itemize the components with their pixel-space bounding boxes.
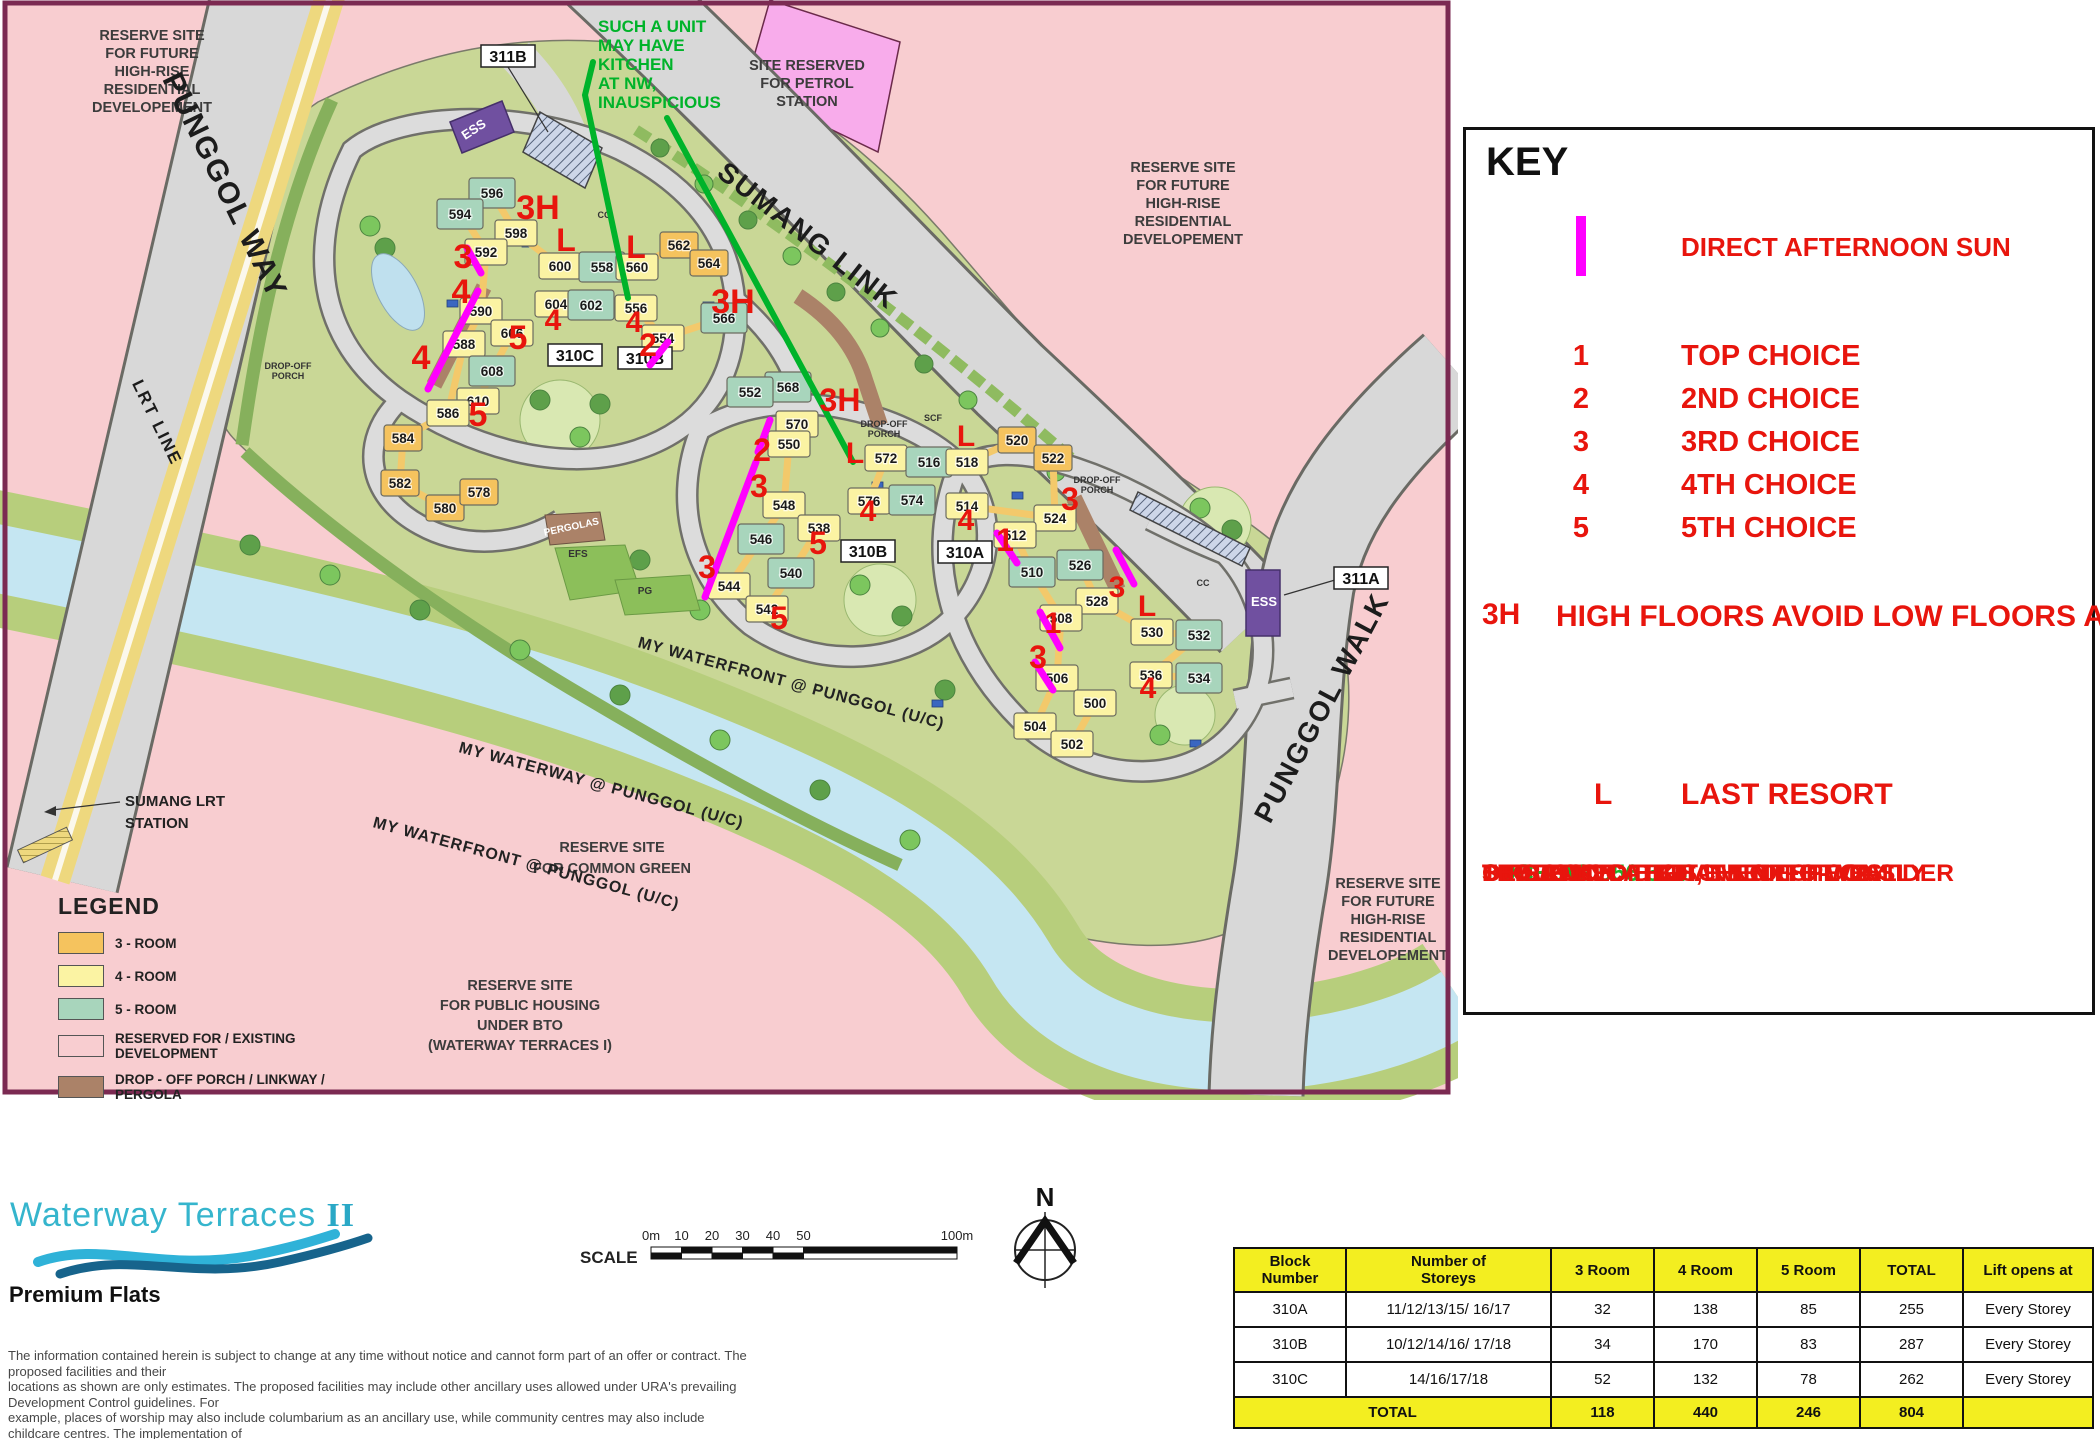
- legend-item: 5 - ROOM: [58, 998, 388, 1020]
- green-note-text: AT NW,: [598, 74, 656, 93]
- block-label-310C: 310C: [548, 344, 602, 366]
- building-number: 562: [668, 238, 691, 253]
- facility-label: ESS: [1251, 594, 1277, 609]
- choice-mark-3: 3: [1109, 571, 1126, 604]
- key-choice-mark: 1: [1551, 340, 1611, 373]
- key-title: KEY: [1486, 140, 1568, 185]
- scale-segment: [773, 1247, 804, 1253]
- scale-segment: [743, 1253, 774, 1259]
- building-number: 518: [956, 455, 979, 470]
- table-cell: 78: [1757, 1362, 1860, 1397]
- building-number: 526: [1069, 558, 1092, 573]
- legend-swatch: [58, 1035, 104, 1057]
- scale-tick-label: 20: [705, 1228, 719, 1243]
- choice-mark-L: L: [626, 229, 646, 265]
- green-note-text: KITCHEN: [598, 55, 674, 74]
- building-586: 586: [427, 400, 469, 426]
- scale-segment: [682, 1253, 713, 1259]
- choice-mark-3: 3: [1029, 639, 1047, 675]
- building-602: 602: [568, 290, 614, 320]
- building-522: 522: [1034, 445, 1072, 471]
- reserve-site-label: FOR PUBLIC HOUSING: [440, 998, 600, 1014]
- choice-mark-3: 3: [1061, 481, 1079, 517]
- block-label-310B: 310B: [841, 540, 895, 562]
- choice-mark-L: L: [957, 420, 975, 453]
- building-502: 502: [1051, 731, 1093, 757]
- table-row: 310A11/12/13/15/ 16/173213885255Every St…: [1234, 1292, 2093, 1327]
- building-532: 532: [1176, 620, 1222, 650]
- lrt-station-label: STATION: [125, 815, 189, 832]
- reserve-site-label: RESERVE SITE: [1130, 160, 1236, 176]
- building-520: 520: [998, 427, 1036, 453]
- building-number: 532: [1188, 628, 1211, 643]
- key-3h-mark: 3H: [1482, 598, 1520, 632]
- tree-icon: [570, 427, 590, 447]
- building-number: 500: [1084, 696, 1107, 711]
- table-cell: 170: [1654, 1327, 1757, 1362]
- legend-swatch: [58, 965, 104, 987]
- table-cell: 310B: [1234, 1327, 1346, 1362]
- key-choice-label: TOP CHOICE: [1681, 340, 1860, 373]
- building-number: 594: [449, 207, 472, 222]
- table-row: 310C14/16/17/185213278262Every Storey: [1234, 1362, 2093, 1397]
- table-header: 3 Room: [1551, 1248, 1654, 1292]
- facility-label: PORCH: [272, 371, 305, 381]
- green-note-text: INAUSPICIOUS: [598, 93, 721, 112]
- tree-icon: [320, 565, 340, 585]
- scale-tick-label: 100m: [941, 1228, 974, 1243]
- building-number: 596: [481, 186, 504, 201]
- facility-label: DROP-OFF: [861, 419, 908, 429]
- facility-label: DROP-OFF: [265, 361, 312, 371]
- building-584: 584: [384, 425, 422, 451]
- building-516: 516: [906, 447, 952, 477]
- table-header: 4 Room: [1654, 1248, 1757, 1292]
- reserve-site-label: FOR FUTURE: [105, 46, 199, 62]
- legend-item: RESERVED FOR / EXISTING DEVELOPMENT: [58, 1031, 388, 1061]
- reserve-site-label: (WATERWAY TERRACES I): [428, 1038, 612, 1054]
- key-panel: KEY DIRECT AFTERNOON SUN 1TOP CHOICE22ND…: [1463, 127, 2095, 1015]
- choice-mark-L: L: [1138, 590, 1156, 623]
- building-534: 534: [1176, 663, 1222, 693]
- tree-icon: [360, 216, 380, 236]
- choice-mark-5: 5: [770, 600, 788, 636]
- tree-icon: [827, 283, 845, 301]
- table-cell: 310C: [1234, 1362, 1346, 1397]
- tree-icon: [915, 355, 933, 373]
- reserve-site-label: RESIDENTIAL: [1340, 930, 1437, 946]
- table-total-row: TOTAL118440246804: [1234, 1397, 2093, 1428]
- tree-icon: [871, 319, 889, 337]
- table-total-cell: 246: [1757, 1397, 1860, 1428]
- table-cell: 262: [1860, 1362, 1963, 1397]
- scale-tick-label: 10: [674, 1228, 688, 1243]
- building-number: 510: [1021, 565, 1044, 580]
- table-total-cell: 804: [1860, 1397, 1963, 1428]
- table-cell: 255: [1860, 1292, 1963, 1327]
- tree-icon: [610, 685, 630, 705]
- key-choice-mark: 5: [1551, 512, 1611, 545]
- building-number: 586: [437, 406, 460, 421]
- tree-icon: [810, 780, 830, 800]
- block-label-text: 310A: [946, 545, 985, 562]
- reserve-site-label: FOR FUTURE: [1341, 894, 1435, 910]
- building-504: 504: [1014, 713, 1056, 739]
- building-number: 584: [392, 431, 415, 446]
- scale-segment: [651, 1253, 682, 1259]
- block-label-310A: 310A: [938, 541, 992, 563]
- building-582: 582: [381, 470, 419, 496]
- key-choice-label: 2ND CHOICE: [1681, 383, 1860, 416]
- key-choice-mark: 2: [1551, 383, 1611, 416]
- table-cell: 11/12/13/15/ 16/17: [1346, 1292, 1551, 1327]
- building-number: 530: [1141, 625, 1164, 640]
- scale-segment: [651, 1247, 682, 1253]
- building-number: 558: [591, 260, 614, 275]
- tree-icon: [1150, 725, 1170, 745]
- table-cell: 52: [1551, 1362, 1654, 1397]
- sun-swatch: [1576, 216, 1586, 276]
- legend-label: 3 - ROOM: [115, 936, 177, 951]
- choice-mark-4: 4: [958, 504, 975, 537]
- scale-segment: [712, 1253, 743, 1259]
- legend: LEGEND 3 - ROOM4 - ROOM5 - ROOMRESERVED …: [58, 893, 388, 1113]
- key-choice-label: 3RD CHOICE: [1681, 426, 1860, 459]
- block-label-text: 310B: [849, 544, 887, 561]
- reserve-site-label: RESERVE SITE: [99, 28, 205, 44]
- tree-icon: [935, 680, 955, 700]
- building-number: 592: [475, 245, 498, 260]
- building-number: 600: [549, 259, 572, 274]
- table-cell: 310A: [1234, 1292, 1346, 1327]
- choice-mark-3H: 3H: [711, 283, 754, 321]
- choice-mark-3H: 3H: [516, 189, 559, 227]
- table-total-cell: 440: [1654, 1397, 1757, 1428]
- facility-label: SCF: [924, 413, 943, 423]
- tree-icon: [651, 139, 669, 157]
- table-cell: 83: [1757, 1327, 1860, 1362]
- building-580: 580: [426, 495, 464, 521]
- legend-swatch: [58, 998, 104, 1020]
- building-number: 578: [468, 485, 491, 500]
- table-header: Number of Storeys: [1346, 1248, 1551, 1292]
- key-3h-text: HIGH FLOORS AVOID LOW FLOORS AS NEAR-BY …: [1556, 598, 2083, 636]
- choice-mark-L: L: [846, 437, 864, 470]
- building-number: 602: [580, 298, 603, 313]
- block-label-text: 311B: [489, 49, 526, 66]
- block-label-311A: 311A: [1334, 567, 1388, 589]
- table-header: Block Number: [1234, 1248, 1346, 1292]
- facility-label: PORCH: [868, 429, 901, 439]
- reserve-site-label: RESERVE SITE: [559, 840, 665, 856]
- facility-label: DROP-OFF: [1074, 475, 1121, 485]
- lrt-station-label: SUMANG LRT: [125, 793, 225, 810]
- choice-mark-3H: 3H: [820, 382, 861, 418]
- key-choice-mark: 3: [1551, 426, 1611, 459]
- building-540: 540: [768, 558, 814, 588]
- block-label-text: 310C: [556, 348, 595, 365]
- building-number: 520: [1006, 433, 1029, 448]
- building-608: 608: [469, 356, 515, 386]
- building-574: 574: [889, 485, 935, 515]
- logo-wave: [38, 1234, 368, 1274]
- key-choice-mark: 4: [1551, 469, 1611, 502]
- scale-bar: SCALE0m1020304050100m: [580, 1228, 973, 1267]
- reserve-site-label: HIGH-RISE: [1351, 912, 1426, 928]
- choice-mark-3: 3: [698, 549, 716, 585]
- table-total-label: TOTAL: [1234, 1397, 1551, 1428]
- scale-label: SCALE: [580, 1248, 638, 1267]
- scale-tick-label: 50: [796, 1228, 810, 1243]
- table-cell: Every Storey: [1963, 1362, 2093, 1397]
- building-number: 564: [698, 256, 721, 271]
- building-564: 564: [690, 250, 728, 276]
- building-number: 568: [777, 380, 800, 395]
- scale-segment: [773, 1253, 804, 1259]
- choice-mark-L: L: [556, 222, 576, 258]
- building-number: 552: [739, 385, 762, 400]
- scale-tick-label: 0m: [642, 1228, 660, 1243]
- table-cell: 287: [1860, 1327, 1963, 1362]
- reserve-site-label: STATION: [776, 94, 837, 110]
- legend-swatch: [58, 1076, 104, 1098]
- tree-icon: [739, 211, 757, 229]
- key-choice-label: 4TH CHOICE: [1681, 469, 1857, 502]
- scale-segment: [804, 1247, 958, 1253]
- tree-icon: [900, 830, 920, 850]
- tree-icon: [510, 640, 530, 660]
- tree-icon: [783, 247, 801, 265]
- legend-label: RESERVED FOR / EXISTING DEVELOPMENT: [115, 1031, 388, 1061]
- tree-icon: [892, 606, 912, 626]
- key-L-label: LAST RESORT: [1681, 778, 1893, 812]
- tree-icon: [710, 730, 730, 750]
- choice-mark-4: 4: [452, 273, 471, 311]
- building-number: 546: [750, 532, 773, 547]
- green-note-text: SUCH A UNIT: [598, 17, 707, 36]
- key-others-line: THIS POINT.: [1482, 860, 1624, 888]
- choice-mark-3: 3: [454, 238, 473, 276]
- reserve-site-label: UNDER BTO: [477, 1018, 563, 1034]
- table-cell: 132: [1654, 1362, 1757, 1397]
- north-arrow: N: [1015, 1182, 1075, 1288]
- facility-label: CC: [1197, 578, 1210, 588]
- facility-label: PORCH: [1081, 485, 1114, 495]
- building-500: 500: [1074, 690, 1116, 716]
- block-summary-table: Block NumberNumber of Storeys3 Room4 Roo…: [1233, 1247, 2094, 1429]
- building-number: 528: [1086, 594, 1109, 609]
- building-number: 548: [773, 498, 796, 513]
- reserve-site-label: DEVELOPEMENT: [1123, 232, 1243, 248]
- reserve-site-label: SITE RESERVED: [749, 58, 865, 74]
- reserve-site-label: RESERVE SITE: [467, 978, 573, 994]
- tree-icon: [530, 390, 550, 410]
- scale-segment: [712, 1247, 743, 1253]
- site-plan-page: 5965945985926005585605625646046025565545…: [0, 0, 2100, 1439]
- tree-icon: [850, 575, 870, 595]
- facility-label: PG: [638, 586, 653, 597]
- table-cell: 138: [1654, 1292, 1757, 1327]
- table-row: 310B10/12/14/16/ 17/183417083287Every St…: [1234, 1327, 2093, 1362]
- building-578: 578: [460, 479, 498, 505]
- building-552: 552: [727, 377, 773, 407]
- legend-label: DROP - OFF PORCH / LINKWAY / PERGOLA: [115, 1072, 388, 1102]
- legend-item: 3 - ROOM: [58, 932, 388, 954]
- building-number: 598: [505, 226, 528, 241]
- choice-mark-4: 4: [412, 339, 431, 377]
- block-label-text: 311A: [1342, 571, 1380, 588]
- reserve-site-label: FOR PETROL: [760, 76, 854, 92]
- building-number: 516: [918, 455, 941, 470]
- choice-mark-4: 4: [1140, 672, 1157, 705]
- shelter-icon: [932, 700, 943, 707]
- building-number: 534: [1188, 671, 1211, 686]
- tree-icon: [630, 550, 650, 570]
- north-label: N: [1036, 1182, 1055, 1212]
- legend-item: 4 - ROOM: [58, 965, 388, 987]
- choice-mark-5: 5: [469, 396, 488, 434]
- choice-mark-1: 1: [1045, 607, 1062, 640]
- choice-mark-2: 2: [639, 327, 657, 363]
- building-548: 548: [763, 492, 805, 518]
- block-label-311B: 311B: [481, 45, 535, 67]
- internal-road: [1235, 688, 1292, 700]
- building-number: 580: [434, 501, 457, 516]
- choice-mark-5: 5: [809, 525, 827, 561]
- tree-icon: [240, 535, 260, 555]
- tree-icon: [590, 394, 610, 414]
- table-cell: 85: [1757, 1292, 1860, 1327]
- building-546: 546: [738, 524, 784, 554]
- green-note-text: MAY HAVE: [598, 36, 685, 55]
- choice-mark-4: 4: [860, 495, 877, 528]
- choice-mark-3: 3: [750, 468, 768, 504]
- table-cell: Every Storey: [1963, 1327, 2093, 1362]
- pg-lawn: [615, 575, 700, 615]
- building-572: 572: [865, 445, 907, 471]
- reserve-site-label: RESERVE SITE: [1335, 876, 1441, 892]
- facility-label: EFS: [568, 549, 588, 560]
- building-number: 572: [875, 451, 898, 466]
- choice-mark-5: 5: [509, 319, 528, 357]
- reserve-site-label: RESIDENTIAL: [1135, 214, 1232, 230]
- building-594: 594: [437, 199, 483, 229]
- tree-icon: [410, 600, 430, 620]
- table-total-cell: 118: [1551, 1397, 1654, 1428]
- table-cell: 32: [1551, 1292, 1654, 1327]
- table-header: TOTAL: [1860, 1248, 1963, 1292]
- building-number: 522: [1042, 451, 1065, 466]
- choice-mark-4: 4: [545, 304, 562, 337]
- key-L-mark: L: [1594, 778, 1612, 812]
- table-cell: 14/16/17/18: [1346, 1362, 1551, 1397]
- tree-icon: [959, 391, 977, 409]
- legend-label: 4 - ROOM: [115, 969, 177, 984]
- building-number: 540: [780, 566, 803, 581]
- scale-segment: [743, 1247, 774, 1253]
- table-header: 5 Room: [1757, 1248, 1860, 1292]
- choice-mark-1: 1: [996, 522, 1014, 558]
- legend-title: LEGEND: [58, 893, 388, 920]
- reserve-site-label: HIGH-RISE: [1146, 196, 1221, 212]
- building-550: 550: [768, 431, 810, 457]
- legend-swatch: [58, 932, 104, 954]
- building-number: 544: [718, 579, 741, 594]
- building-number: 504: [1024, 719, 1047, 734]
- legend-item: DROP - OFF PORCH / LINKWAY / PERGOLA: [58, 1072, 388, 1102]
- table-cell: 34: [1551, 1327, 1654, 1362]
- building-number: 502: [1061, 737, 1084, 752]
- building-number: 550: [778, 437, 801, 452]
- table-total-cell: [1963, 1397, 2093, 1428]
- choice-mark-2: 2: [753, 432, 771, 468]
- reserve-site-label: FOR FUTURE: [1136, 178, 1230, 194]
- table-cell: Every Storey: [1963, 1292, 2093, 1327]
- scale-segment: [682, 1247, 713, 1253]
- key-choice-label: 5TH CHOICE: [1681, 512, 1857, 545]
- building-526: 526: [1057, 550, 1103, 580]
- scale-tick-label: 30: [735, 1228, 749, 1243]
- building-number: 582: [389, 476, 412, 491]
- scale-segment: [804, 1253, 958, 1259]
- building-number: 570: [786, 417, 809, 432]
- sun-label: DIRECT AFTERNOON SUN: [1681, 232, 2011, 263]
- scale-tick-label: 40: [766, 1228, 780, 1243]
- building-number: 608: [481, 364, 504, 379]
- reserve-site-label: DEVELOPEMENT: [1328, 948, 1448, 964]
- legend-label: 5 - ROOM: [115, 1002, 177, 1017]
- building-number: 574: [901, 493, 924, 508]
- table-cell: 10/12/14/16/ 17/18: [1346, 1327, 1551, 1362]
- shelter-icon: [1012, 492, 1023, 499]
- table-header: Lift opens at: [1963, 1248, 2093, 1292]
